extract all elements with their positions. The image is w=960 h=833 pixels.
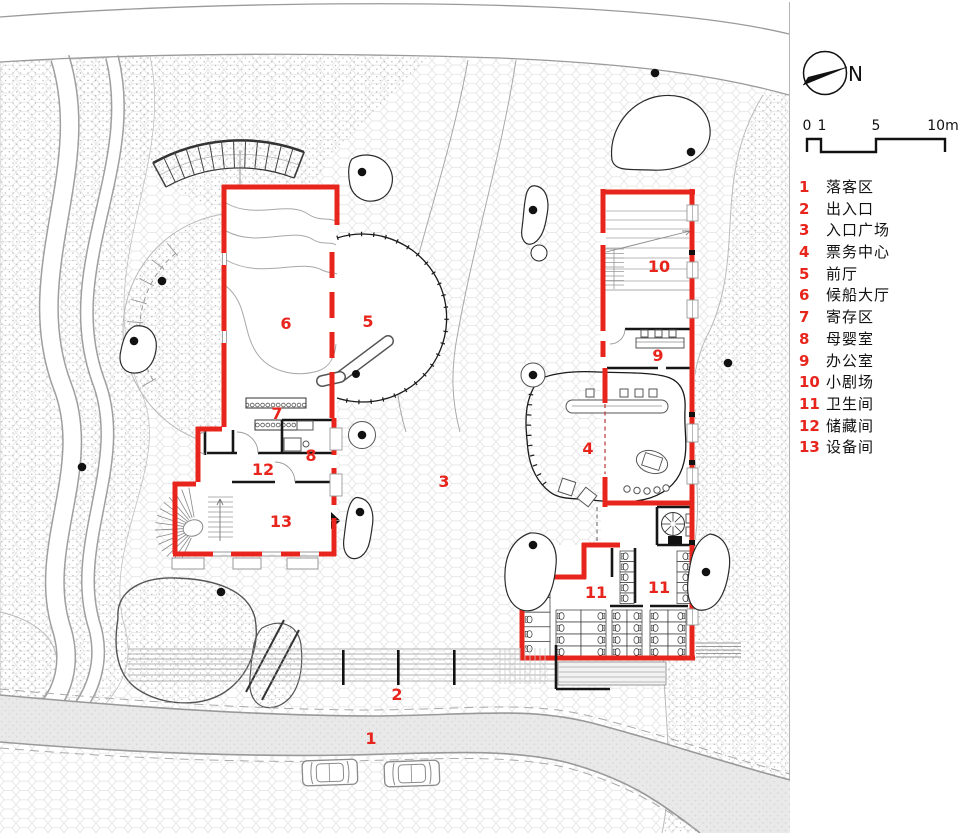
tree-dot (358, 431, 367, 440)
legend: 1落客区2出入口3入口广场4票务中心5前厅6候船大厅7寄存区8母婴室9办公室10… (799, 177, 959, 459)
scale-tick-10m: 10m (927, 118, 958, 134)
legend-item-number: 9 (799, 351, 826, 373)
entry-step (233, 558, 261, 569)
wall-tick (689, 460, 695, 465)
legend-item: 8母婴室 (799, 329, 959, 351)
legend-item: 9办公室 (799, 351, 959, 373)
car (384, 760, 440, 787)
chair (649, 389, 657, 397)
toilet-stall (627, 634, 642, 646)
stool (644, 488, 650, 494)
tree-dot (687, 148, 696, 157)
legend-item-number: 3 (799, 220, 826, 242)
toilet-stall (620, 593, 634, 604)
wall-tick (689, 250, 695, 255)
toilet-stall (620, 551, 634, 562)
legend-item-label: 候船大厅 (826, 285, 890, 307)
scale-tick-5: 5 (872, 118, 881, 134)
car (302, 759, 358, 786)
chair (655, 330, 662, 337)
chair (635, 389, 643, 397)
stool (624, 486, 630, 492)
north-label: N (848, 62, 863, 86)
stair-floor (173, 482, 233, 554)
north-arrow: N (803, 52, 863, 95)
tree-dot (651, 69, 660, 78)
legend-item-number: 10 (799, 372, 826, 394)
legend-item-label: 设备间 (826, 437, 874, 459)
legend-item-label: 储藏间 (826, 416, 874, 438)
legend-item-number: 5 (799, 264, 826, 286)
indoor-tree-dot (352, 370, 360, 378)
plan-label-9: 9 (652, 346, 663, 365)
tree-dot (724, 359, 733, 368)
plan-label-8: 8 (305, 446, 316, 465)
hall-floor (222, 185, 337, 429)
plan-label-13: 13 (270, 512, 292, 531)
toilet-stall (612, 610, 627, 622)
scale-bar-shape (807, 139, 945, 152)
walkway-post (397, 650, 400, 685)
plan-label-5: 5 (362, 312, 373, 331)
site-plan-page: 1234567891011111213 N 0 1 5 10m 1落客区2出入口… (0, 0, 960, 833)
legend-item: 1落客区 (799, 177, 959, 199)
wall-tick (689, 540, 695, 545)
plan-label-3: 3 (438, 472, 449, 491)
tree-dot (356, 508, 365, 517)
toilet-stall (612, 622, 627, 634)
legend-item-label: 落客区 (826, 177, 874, 199)
legend-item-label: 出入口 (826, 199, 874, 221)
toilet-stall (556, 622, 581, 634)
plan-label-4: 4 (582, 439, 593, 458)
scale-tick-0: 0 (803, 118, 812, 134)
toilet-stall (556, 610, 581, 622)
legend-item-number: 11 (799, 394, 826, 416)
plan-label-1: 1 (365, 729, 376, 748)
bed (284, 438, 301, 451)
scale-bar: 0 1 5 10m (803, 118, 959, 152)
legend-item-number: 1 (799, 177, 826, 199)
plan-label-6: 6 (280, 314, 291, 333)
window-box (330, 428, 342, 450)
toilet-stall (524, 627, 550, 642)
tree-dot (158, 277, 167, 286)
toilet-stall (677, 551, 691, 562)
toilet-stall (581, 622, 606, 634)
entry-step (287, 558, 318, 569)
legend-item-label: 票务中心 (826, 242, 890, 264)
toilet-stall (620, 583, 634, 594)
legend-item-label: 入口广场 (826, 220, 890, 242)
chair (641, 330, 648, 337)
window-box (330, 474, 342, 496)
legend-item: 4票务中心 (799, 242, 959, 264)
toilet-stall (556, 634, 581, 646)
legend-item: 10小剧场 (799, 372, 959, 394)
toilet-stall (627, 622, 642, 634)
counter (297, 421, 313, 430)
legend-item-number: 12 (799, 416, 826, 438)
legend-item-number: 7 (799, 307, 826, 329)
legend-item-label: 前厅 (826, 264, 858, 286)
legend-item-label: 卫生间 (826, 394, 874, 416)
tree-dot (702, 568, 711, 577)
legend-item-number: 13 (799, 437, 826, 459)
toilet-stall (524, 612, 550, 627)
legend-item: 2出入口 (799, 199, 959, 221)
plan-label-11: 11 (648, 578, 670, 597)
legend-item-number: 8 (799, 329, 826, 351)
tree-dot (529, 541, 538, 550)
toilet-stall (620, 572, 634, 583)
stool (663, 485, 669, 491)
legend-item-number: 2 (799, 199, 826, 221)
legend-item-number: 4 (799, 242, 826, 264)
toilet-stall (581, 634, 606, 646)
legend-item: 6候船大厅 (799, 285, 959, 307)
entry-step (172, 558, 204, 569)
legend-item: 7寄存区 (799, 307, 959, 329)
toilet-stall (524, 641, 550, 656)
plan-label-12: 12 (252, 460, 274, 479)
plan-label-2: 2 (391, 685, 402, 704)
chair (620, 389, 628, 397)
tree-dot (358, 168, 367, 177)
stair-hatch (668, 536, 682, 544)
planter-blob (116, 578, 256, 703)
legend-item: 3入口广场 (799, 220, 959, 242)
toilet-stall (581, 610, 606, 622)
toilet-stall (627, 610, 642, 622)
tree-dot (217, 588, 226, 597)
stool (634, 487, 640, 493)
scale-tick-1: 1 (818, 118, 827, 134)
tree-dot (529, 206, 538, 215)
plan-label-7: 7 (271, 404, 282, 423)
walkway-post (342, 650, 345, 685)
planter-circle (531, 245, 547, 261)
tree-dot (130, 337, 139, 346)
legend-item-number: 6 (799, 285, 826, 307)
walkway-post (453, 650, 456, 685)
legend-item: 13设备间 (799, 437, 959, 459)
toilet-stall (620, 562, 634, 573)
chair (586, 389, 594, 397)
plan-label-11: 11 (585, 583, 607, 602)
legend-item-label: 办公室 (826, 351, 874, 373)
chair (669, 330, 676, 337)
tree-dot (529, 371, 538, 380)
plan-label-10: 10 (648, 257, 670, 276)
legend-item-label: 母婴室 (826, 329, 874, 351)
legend-item: 5前厅 (799, 264, 959, 286)
legend-item-label: 小剧场 (826, 372, 874, 394)
top-road-edge (0, 4, 789, 34)
legend-item: 12储藏间 (799, 416, 959, 438)
tree-dot (78, 463, 87, 472)
stool (654, 487, 660, 493)
toilet-stall (612, 634, 627, 646)
legend-item-label: 寄存区 (826, 307, 874, 329)
legend-item: 11卫生间 (799, 394, 959, 416)
wall-tick (689, 412, 695, 417)
ticket-counter (566, 400, 668, 413)
